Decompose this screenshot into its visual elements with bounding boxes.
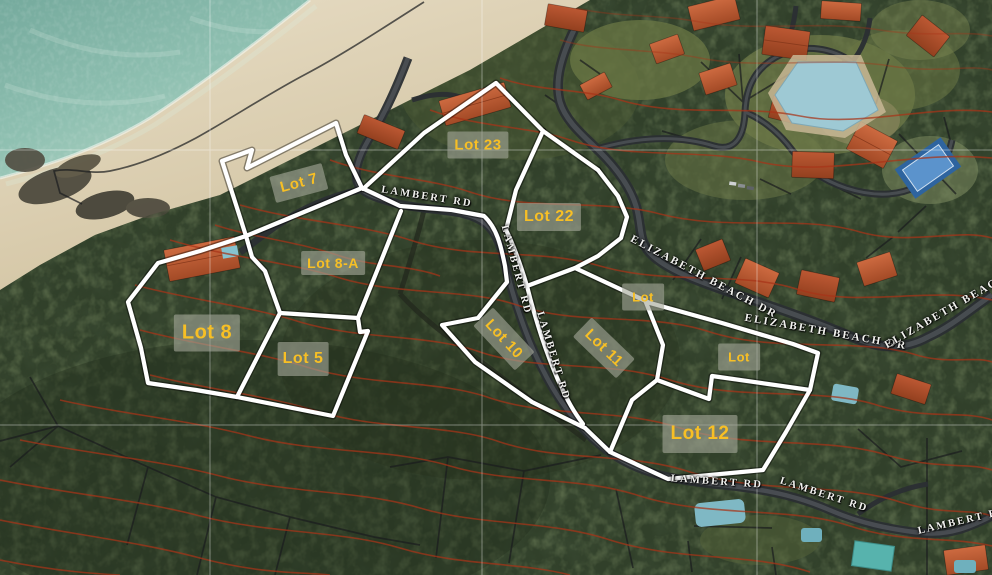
lot-label-lot-8a: Lot 8-A — [301, 251, 365, 275]
road-label-lambert-rd-bottom-3: LAMBERT RD — [917, 505, 992, 536]
lot-label-lot-7: Lot 7 — [269, 163, 328, 203]
aerial-plat-map: Lot 7 Lot 23 Lot 22 Lot 8-A Lot 8 Lot 5 … — [0, 0, 992, 575]
map-labels: Lot 7 Lot 23 Lot 22 Lot 8-A Lot 8 Lot 5 … — [0, 0, 992, 575]
road-label-lambert-rd-vertical-2: LAMBERT RD — [534, 310, 572, 402]
road-label-elizabeth-beach-3: ELIZABETH BEACH — [883, 271, 992, 351]
lot-label-lot-22: Lot 22 — [517, 203, 581, 231]
lot-label-lot-10: Lot 10 — [473, 307, 534, 370]
lot-label-lot-5: Lot 5 — [278, 342, 329, 376]
lot-label-lot-11: Lot 11 — [573, 317, 635, 378]
road-label-lambert-rd-vertical-1: LAMBERT RD — [499, 224, 534, 316]
lot-label-unnamed-lower: Lot — [718, 344, 760, 371]
lot-label-lot-23: Lot 23 — [447, 132, 508, 159]
road-label-lambert-rd-bottom-1: LAMBERT RD — [671, 473, 764, 490]
lot-label-unnamed-upper: Lot — [622, 284, 664, 311]
road-label-lambert-rd-bottom-2: LAMBERT RD — [778, 476, 869, 515]
road-label-elizabeth-beach-dr-2: ELIZABETH BEACH DR — [744, 312, 909, 352]
lot-label-lot-8: Lot 8 — [174, 315, 240, 352]
lot-label-lot-12: Lot 12 — [663, 415, 738, 453]
road-label-lambert-rd-top: LAMBERT RD — [381, 184, 474, 209]
